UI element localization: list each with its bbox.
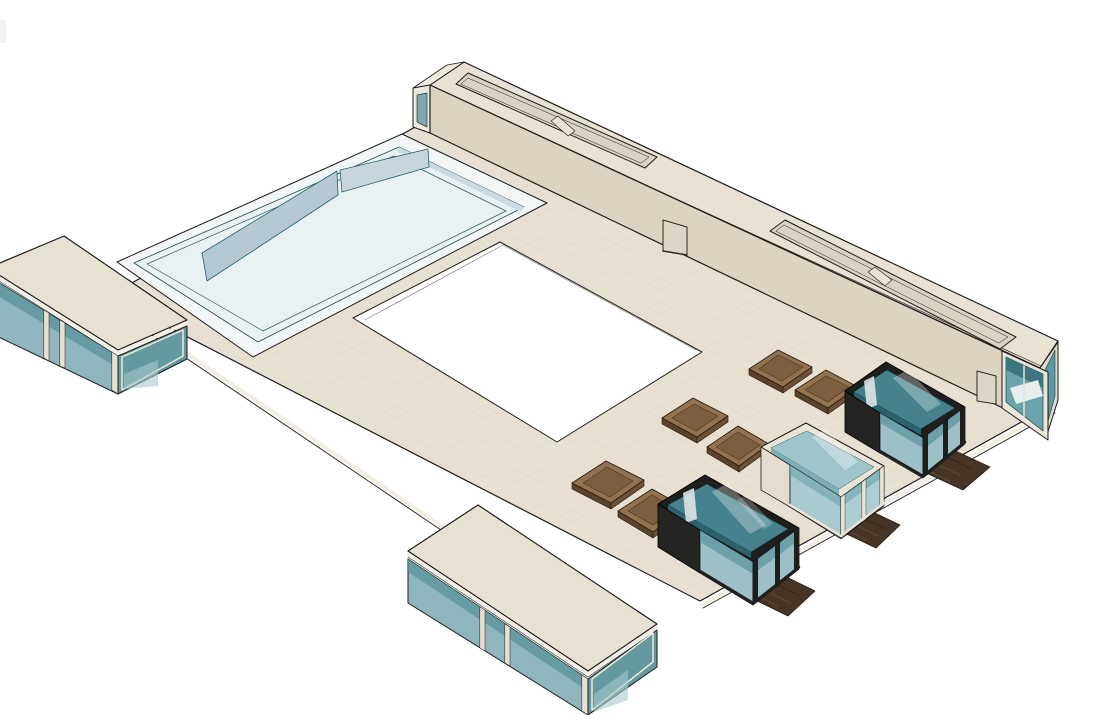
building-door-right (977, 371, 996, 404)
ui-edge-artifact (0, 20, 6, 43)
cabin-post (753, 558, 758, 605)
scene-svg[interactable] (0, 0, 1115, 715)
pavilion-mullion-2 (505, 624, 510, 666)
model-viewport[interactable] (0, 0, 1115, 715)
pavilion-corner-post (582, 675, 588, 715)
pavilion-mullion-1 (480, 607, 485, 651)
cabin-post (880, 466, 884, 508)
pavilion-mullion-1 (44, 310, 49, 361)
scene-root (0, 20, 1058, 715)
pavilion-mullion-2 (60, 320, 65, 368)
cabin-post (841, 494, 845, 538)
building-left-end-glass (417, 93, 427, 127)
pavilion-corner-post (112, 352, 118, 394)
cabin-mullion (862, 479, 866, 522)
edge-artifact-rect (0, 20, 6, 43)
